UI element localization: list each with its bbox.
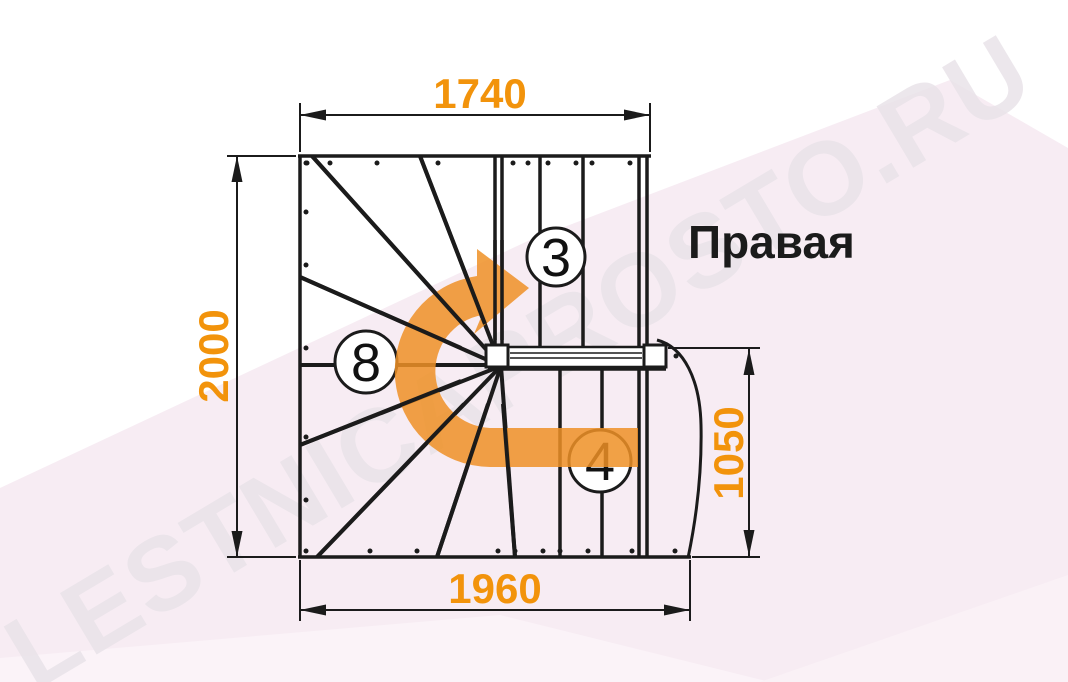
dim-top-value: 1740 (433, 70, 526, 117)
newel-post-left (486, 345, 508, 367)
stair-plan-diagram: LESTNICAPROSTO.RU (0, 0, 1068, 682)
handrail-bar (486, 345, 666, 369)
page-title: Правая (688, 216, 855, 268)
dim-bottom-value: 1960 (448, 565, 541, 612)
newel-post-right (644, 345, 666, 367)
badge-winder-count: 8 (351, 333, 381, 393)
dim-left-value: 2000 (190, 309, 237, 402)
dim-right-value: 1050 (705, 406, 752, 499)
badge-top-flight-count: 3 (541, 228, 571, 288)
diagram-canvas: LESTNICAPROSTO.RU (0, 0, 1068, 682)
